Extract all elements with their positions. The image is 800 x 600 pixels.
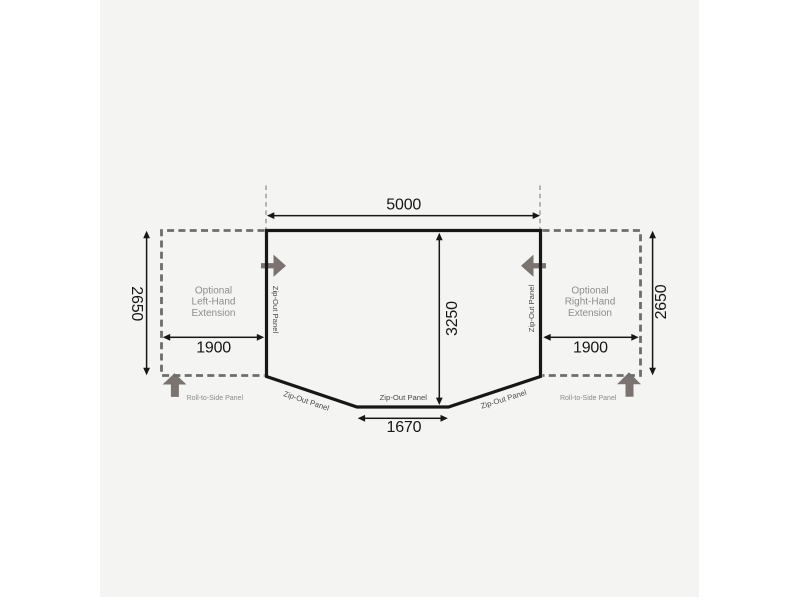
svg-text:1900: 1900 [196, 340, 231, 357]
svg-text:Zip-Out Panel: Zip-Out Panel [527, 284, 536, 332]
svg-text:2650: 2650 [653, 284, 670, 319]
svg-text:3250: 3250 [444, 301, 461, 336]
svg-text:Left-Hand: Left-Hand [192, 297, 236, 308]
svg-text:Extension: Extension [192, 308, 236, 319]
svg-text:1670: 1670 [387, 419, 422, 436]
svg-text:Roll-to-Side Panel: Roll-to-Side Panel [560, 395, 617, 402]
svg-text:5000: 5000 [386, 197, 421, 214]
svg-text:Roll-to-Side Panel: Roll-to-Side Panel [187, 395, 244, 402]
svg-text:Zip-Out Panel: Zip-Out Panel [380, 393, 428, 402]
svg-text:Optional: Optional [571, 285, 608, 296]
svg-text:2650: 2650 [128, 286, 145, 321]
svg-text:Zip-Out Panel: Zip-Out Panel [271, 286, 280, 334]
svg-text:1900: 1900 [573, 340, 608, 357]
svg-text:Right-Hand: Right-Hand [565, 297, 616, 308]
svg-text:Extension: Extension [568, 308, 612, 319]
svg-text:Optional: Optional [195, 285, 232, 296]
